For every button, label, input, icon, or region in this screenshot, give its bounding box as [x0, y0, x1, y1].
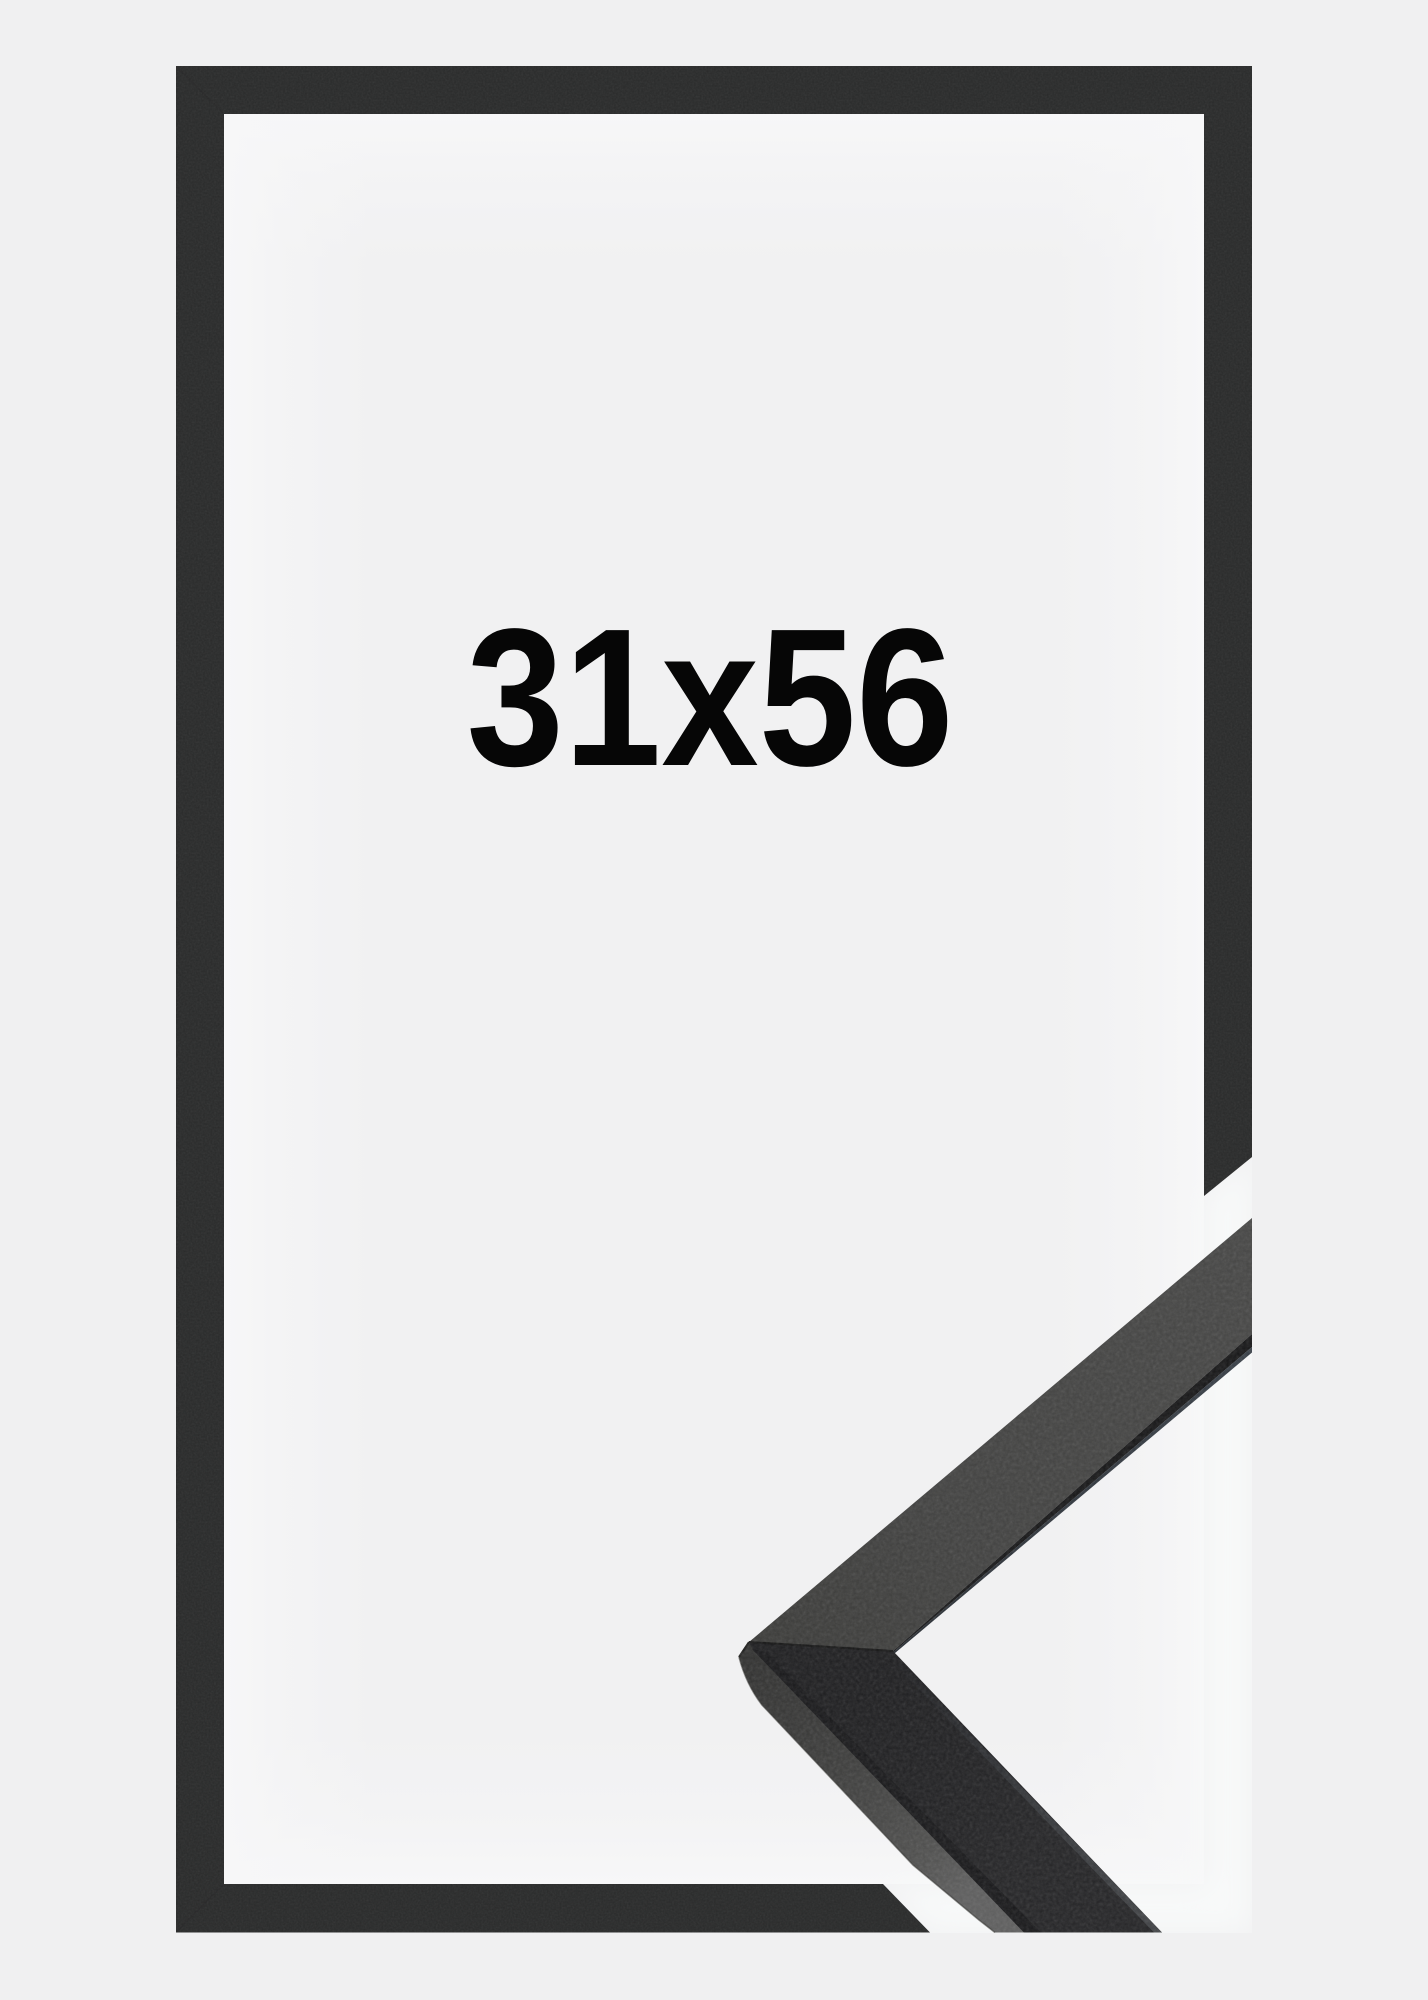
svg-text:31x56: 31x56 — [467, 588, 954, 807]
